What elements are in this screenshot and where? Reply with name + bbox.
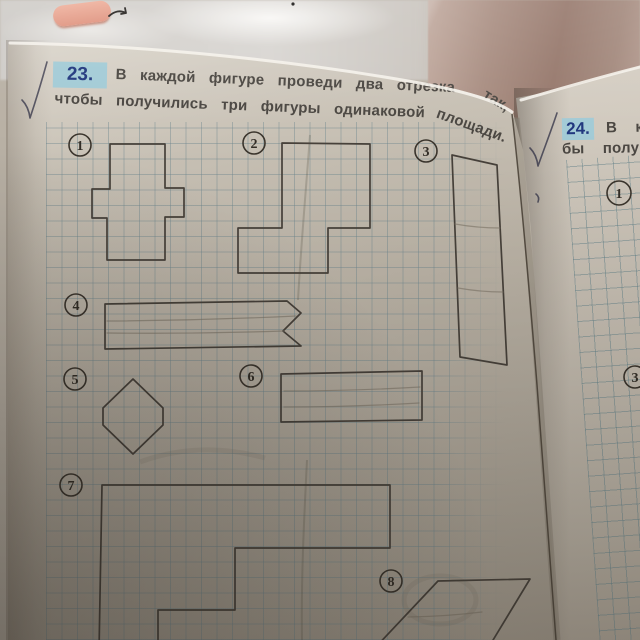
workbook-photo: 23. В каждой фигуре проведи два отрезка … [0, 0, 640, 640]
task-24-text-line1: В к [606, 119, 640, 137]
left-page-grid [46, 122, 510, 640]
task-24-number: 24. [566, 119, 590, 138]
left-margin-shadow [6, 40, 52, 640]
task-24-number-badge: 24. [562, 118, 594, 141]
task-23-number: 23. [67, 64, 94, 85]
task-23-number-badge: 23. [53, 62, 107, 89]
task-24-text-line2: бы полу [562, 139, 639, 157]
